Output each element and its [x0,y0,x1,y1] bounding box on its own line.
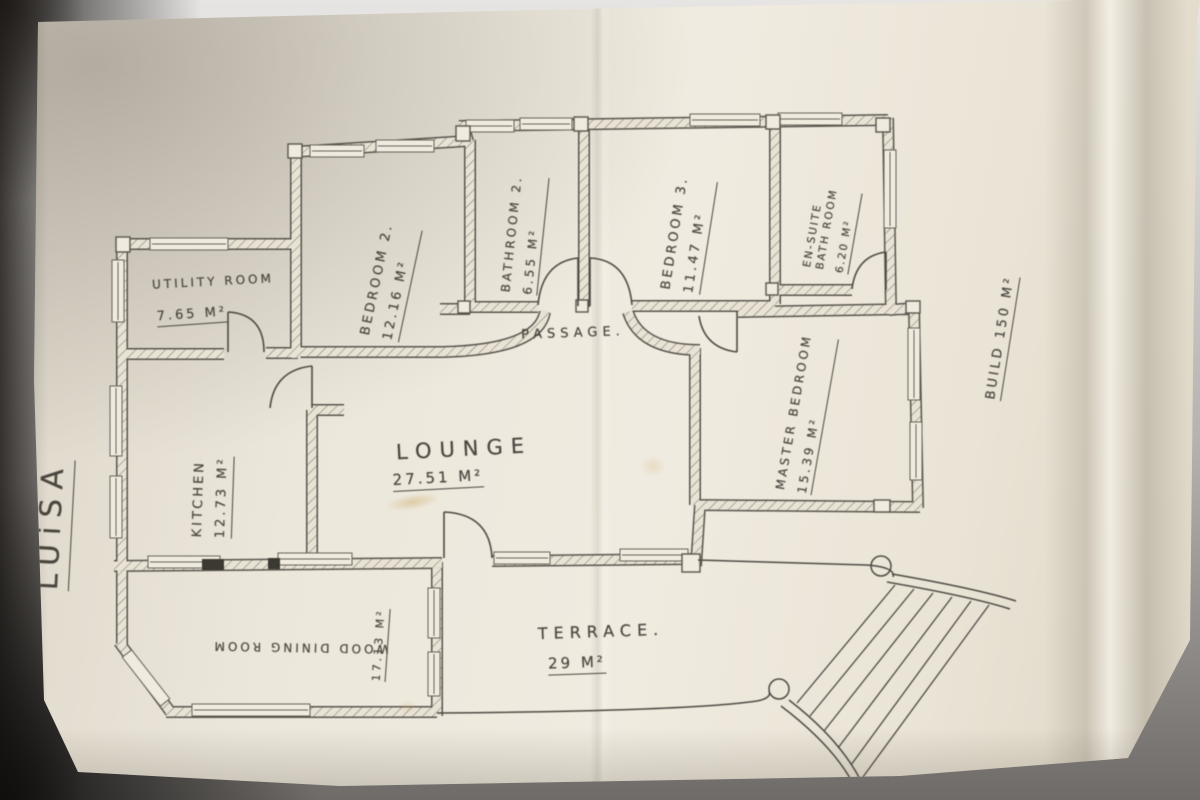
plan-title-text: LUiSA [29,459,75,592]
paper-sheet: LUiSA BUILD 150 M² UTILITY ROOM 7.65 M² … [0,0,1200,800]
room-area-terrace: 29 M² [548,653,607,676]
room-label-kitchen: KITCHEN 12.73 M² [190,455,234,538]
floor-plan-svg [0,0,1200,800]
stair-rail-top [887,574,1016,609]
stair-steps [797,585,989,781]
paper-stain [640,455,666,477]
photograph-background: LUiSA BUILD 150 M² UTILITY ROOM 7.65 M² … [0,0,1200,800]
room-label-dining: WOOD DINING ROOM [211,638,388,656]
terrace-and-stairs [437,556,1016,799]
paper-stain [398,700,418,714]
stair-rail-bottom [781,700,869,799]
plan-title: LUiSA [29,459,75,592]
floor-plan-drawing: LUiSA BUILD 150 M² UTILITY ROOM 7.65 M² … [0,0,1200,800]
